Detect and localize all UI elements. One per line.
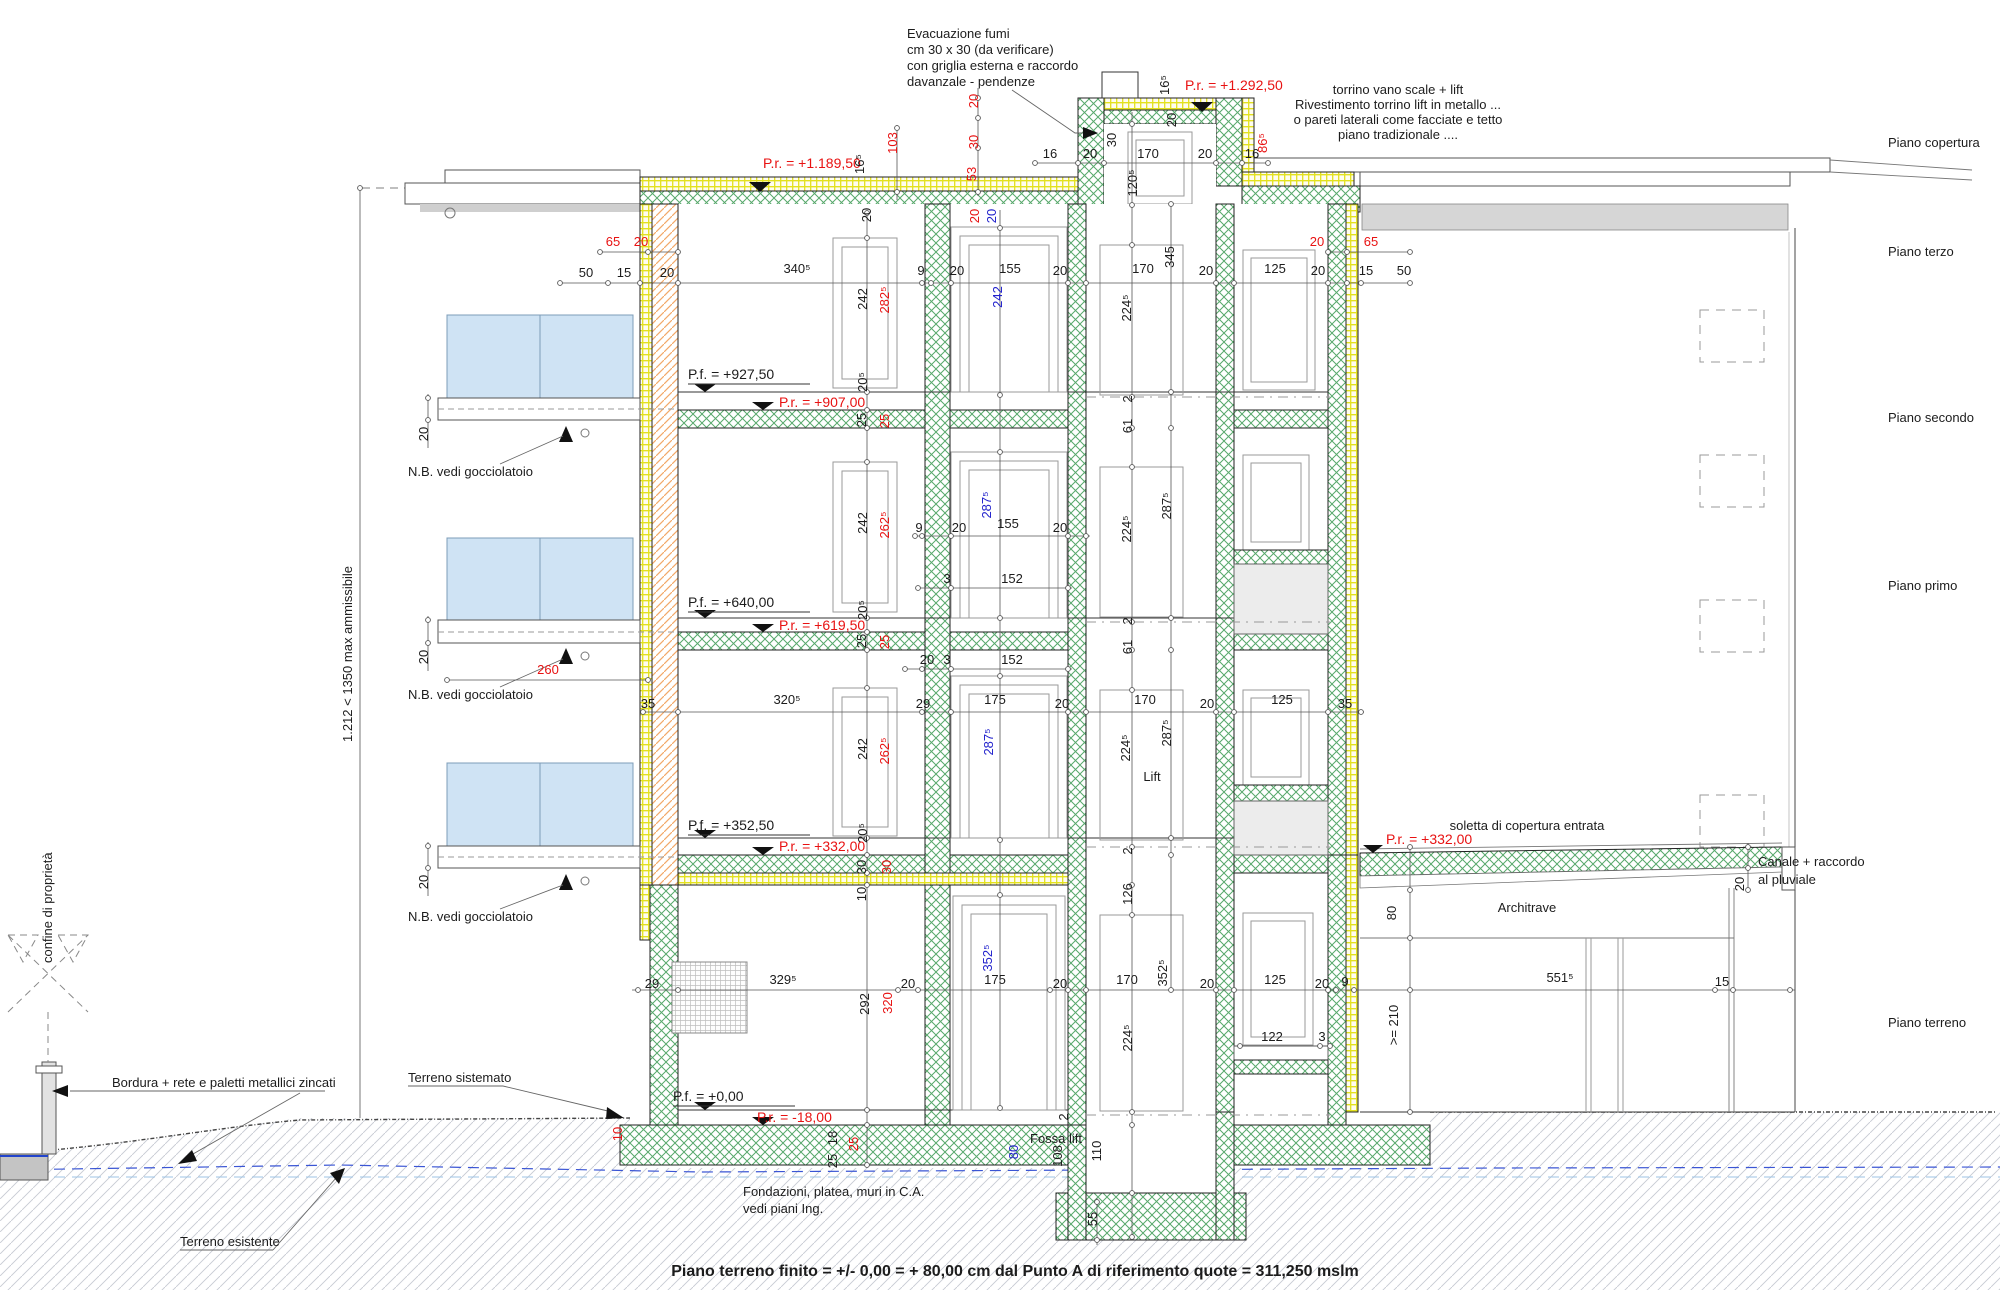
dim-label-red: P.r. = +1.189,50 xyxy=(763,155,861,171)
dim-tick-icon xyxy=(598,250,603,255)
label: 20 xyxy=(1164,113,1179,127)
label: N.B. vedi gocciolatoio xyxy=(408,464,533,479)
dim-tick-icon xyxy=(1130,1235,1135,1240)
roof-insulation xyxy=(640,177,1078,191)
label: 2 xyxy=(1056,1113,1071,1120)
dim-tick-icon xyxy=(865,686,870,691)
dim-tick-icon xyxy=(865,630,870,635)
dim-tick-icon xyxy=(638,281,643,286)
dim-tick-icon xyxy=(1033,161,1038,166)
label: Piano copertura xyxy=(1888,135,1981,150)
label: 20 xyxy=(901,976,915,991)
label: 1.212 < 1350 max ammissibile xyxy=(340,566,355,742)
dim-tick-icon xyxy=(976,116,981,121)
label: torrino vano scale + lift xyxy=(1333,82,1464,97)
dim-tick-icon xyxy=(1048,988,1053,993)
dim-label-red: 25 xyxy=(846,1137,861,1151)
label: 20 xyxy=(1083,146,1097,161)
label: 122 xyxy=(1261,1029,1283,1044)
label: 15 xyxy=(1359,263,1373,278)
dim-tick-icon xyxy=(1066,281,1071,286)
label: 80 xyxy=(1384,906,1399,920)
lift-shaft-wall xyxy=(1216,204,1234,1237)
background-facade xyxy=(1360,228,1795,1112)
label: 292 xyxy=(857,993,872,1015)
dim-tick-icon xyxy=(949,586,954,591)
label: 25 xyxy=(854,413,869,427)
label: Terreno esistente xyxy=(180,1234,280,1249)
dim-tick-icon xyxy=(920,667,925,672)
entrance-step xyxy=(1234,1046,1328,1060)
label: 3 xyxy=(1318,1029,1325,1044)
dim-tick-icon xyxy=(1359,281,1364,286)
dim-label-blue: 242 xyxy=(990,286,1005,308)
label: 352⁵ xyxy=(1155,959,1170,986)
label: cm 30 x 30 (da verificare) xyxy=(907,42,1054,57)
dim-tick-icon xyxy=(1102,161,1107,166)
label: 20⁵ xyxy=(855,823,870,843)
dim-label-red: 30 xyxy=(879,860,894,874)
dim-label-red: 320 xyxy=(880,992,895,1014)
dim-tick-icon xyxy=(426,866,431,871)
label: piano tradizionale .... xyxy=(1338,127,1458,142)
label: Bordura + rete e paletti metallici zinca… xyxy=(112,1075,336,1090)
dim-tick-icon xyxy=(1232,988,1237,993)
dim-tick-icon xyxy=(1408,888,1413,893)
label: Lift xyxy=(1143,769,1161,784)
dim-tick-icon xyxy=(606,281,611,286)
roof-slab-right xyxy=(1254,158,1830,172)
label: 20 xyxy=(1055,696,1069,711)
dim-tick-icon xyxy=(358,186,363,191)
label: Piano secondo xyxy=(1888,410,1974,425)
dim-label-red: P.r. = +619,50 xyxy=(779,617,865,633)
dim-tick-icon xyxy=(1095,1200,1100,1205)
dim-tick-icon xyxy=(636,988,641,993)
dim-label-red: 20 xyxy=(966,94,981,108)
dim-label-red: P.r. = +332,00 xyxy=(1386,831,1472,847)
dim-label-red: 103 xyxy=(885,132,900,154)
label: 242 xyxy=(855,738,870,760)
dim-tick-icon xyxy=(1169,836,1174,841)
label: 320⁵ xyxy=(773,692,800,707)
dim-tick-icon xyxy=(1352,988,1357,993)
dim-label-red: P.r. = +907,00 xyxy=(779,394,865,410)
roof-slab-right xyxy=(1360,172,1790,186)
label: 20 xyxy=(1053,263,1067,278)
label: 30 xyxy=(1104,133,1119,147)
label: vedi piani Ing. xyxy=(743,1201,823,1216)
label: 170 xyxy=(1134,692,1156,707)
dim-tick-icon xyxy=(1169,426,1174,431)
label: 50 xyxy=(579,265,593,280)
dim-label-red: 86⁵ xyxy=(1255,133,1270,153)
label: 20 xyxy=(1053,520,1067,535)
dim-label-red: 282⁵ xyxy=(877,286,892,313)
dim-tick-icon xyxy=(976,190,981,195)
label: 18 xyxy=(825,1131,840,1145)
dim-tick-icon xyxy=(1095,1238,1100,1243)
spandrel-panel xyxy=(1234,564,1328,634)
dim-tick-icon xyxy=(1328,1044,1333,1049)
dim-tick-icon xyxy=(916,586,921,591)
label: 110 xyxy=(1089,1141,1104,1162)
roof-overhang-slab xyxy=(405,183,640,204)
dim-tick-icon xyxy=(998,893,1003,898)
dim-tick-icon xyxy=(1345,250,1350,255)
label: 170 xyxy=(1132,261,1154,276)
label: 2 xyxy=(1120,847,1135,854)
dim-tick-icon xyxy=(998,226,1003,231)
fence-post xyxy=(42,1062,56,1154)
label: Piano terreno finito = +/- 0,00 = + 80,0… xyxy=(671,1263,1358,1280)
dim-tick-icon xyxy=(1318,1044,1323,1049)
dim-tick-icon xyxy=(949,710,954,715)
label: 20 xyxy=(1053,976,1067,991)
label: 20 xyxy=(950,263,964,278)
dim-tick-icon xyxy=(916,988,921,993)
label: P.f. = +0,00 xyxy=(673,1088,744,1104)
label: 20 xyxy=(660,265,674,280)
dim-tick-icon xyxy=(1240,161,1245,166)
dim-label-red: 20 xyxy=(967,209,982,223)
dim-tick-icon xyxy=(1084,534,1089,539)
label: 55 xyxy=(1085,1212,1100,1226)
dim-tick-icon xyxy=(1169,648,1174,653)
dim-tick-icon xyxy=(676,281,681,286)
dim-tick-icon xyxy=(1076,161,1081,166)
dim-tick-icon xyxy=(426,396,431,401)
dim-tick-icon xyxy=(865,883,870,888)
dim-tick-icon xyxy=(1408,250,1413,255)
dim-tick-icon xyxy=(895,126,900,131)
dim-tick-icon xyxy=(1788,988,1793,993)
label: Piano terreno xyxy=(1888,1015,1966,1030)
label: 16⁵ xyxy=(852,154,867,174)
lift-shaft-wall xyxy=(1068,204,1086,1237)
dim-tick-icon xyxy=(1408,1110,1413,1115)
dim-tick-icon xyxy=(1169,853,1174,858)
dim-tick-icon xyxy=(558,281,563,286)
label: 152 xyxy=(1001,571,1023,586)
dim-label-red: P.r. = +1.292,50 xyxy=(1185,77,1283,93)
label: 224⁵ xyxy=(1120,1024,1135,1051)
label: Evacuazione fumi xyxy=(907,26,1010,41)
dim-tick-icon xyxy=(865,1163,870,1168)
dim-tick-icon xyxy=(1130,465,1135,470)
label: 20 xyxy=(416,650,431,664)
label: 20⁵ xyxy=(855,600,870,620)
label: 20 xyxy=(1199,263,1213,278)
dim-tick-icon xyxy=(865,460,870,465)
label: 16⁵ xyxy=(1157,75,1172,95)
dim-label-red: 262⁵ xyxy=(877,511,892,538)
label: soletta di copertura entrata xyxy=(1450,818,1605,833)
slab-insulation xyxy=(678,873,1068,885)
right-wall-insulation xyxy=(1346,204,1358,855)
dim-tick-icon xyxy=(949,281,954,286)
dim-label-red: 53 xyxy=(964,167,979,181)
dim-tick-icon xyxy=(1232,281,1237,286)
label: >= 210 xyxy=(1386,1005,1401,1046)
foundation-slab xyxy=(1234,1125,1430,1165)
dim-tick-icon xyxy=(1130,1191,1135,1196)
dim-tick-icon xyxy=(1408,936,1413,941)
dim-tick-icon xyxy=(1130,243,1135,248)
label: davanzale - pendenze xyxy=(907,74,1035,89)
label: Rivestimento torrino lift in metallo ... xyxy=(1295,97,1501,112)
dim-tick-icon xyxy=(998,616,1003,621)
label: 125 xyxy=(1264,261,1286,276)
facade-area xyxy=(1362,228,1795,1112)
dim-tick-icon xyxy=(1359,710,1364,715)
label: Canale + raccordo xyxy=(1758,854,1865,869)
label: 30 xyxy=(854,860,869,874)
dim-tick-icon xyxy=(1266,161,1271,166)
label: 20 xyxy=(1200,976,1214,991)
dim-tick-icon xyxy=(1084,988,1089,993)
label: 29 xyxy=(645,976,659,991)
fence-cap xyxy=(36,1066,62,1073)
dim-tick-icon xyxy=(1169,390,1174,395)
label: 126 xyxy=(1120,883,1135,905)
dim-tick-icon xyxy=(1169,202,1174,207)
label: 224⁵ xyxy=(1119,515,1134,542)
label: 16 xyxy=(1043,146,1057,161)
left-wall-brick xyxy=(652,204,678,885)
dim-tick-icon xyxy=(1130,122,1135,127)
dim-tick-icon xyxy=(1731,988,1736,993)
label: 120⁵ xyxy=(1125,169,1140,196)
label: 20 xyxy=(920,652,934,667)
label: 345 xyxy=(1162,246,1177,268)
dim-tick-icon xyxy=(1408,281,1413,286)
label: Fossa lift xyxy=(1030,1131,1082,1146)
dim-tick-icon xyxy=(865,1108,870,1113)
dim-tick-icon xyxy=(1130,1123,1135,1128)
label: 15 xyxy=(617,265,631,280)
curb xyxy=(0,1154,48,1180)
label: 15 xyxy=(1715,974,1729,989)
dim-tick-icon xyxy=(1130,203,1135,208)
dim-label-red: 262⁵ xyxy=(877,737,892,764)
dim-label-red: 25 xyxy=(877,414,892,428)
dim-tick-icon xyxy=(896,988,901,993)
label: Piano primo xyxy=(1888,578,1957,593)
dim-tick-icon xyxy=(426,844,431,849)
dim-tick-icon xyxy=(676,250,681,255)
label: 20 xyxy=(1315,976,1329,991)
label: 3 xyxy=(943,652,950,667)
label: 20 xyxy=(416,427,431,441)
label: 242 xyxy=(855,512,870,534)
label: P.f. = +352,50 xyxy=(688,817,774,833)
label: 20 xyxy=(1732,877,1747,891)
label: 20⁵ xyxy=(855,372,870,392)
label: 2 xyxy=(1120,395,1135,402)
label: 20 xyxy=(952,520,966,535)
dim-tick-icon xyxy=(1334,988,1339,993)
label: con griglia esterna e raccordo xyxy=(907,58,1078,73)
dim-tick-icon xyxy=(646,678,651,683)
label: 155 xyxy=(999,261,1021,276)
label: 224⁵ xyxy=(1118,734,1133,761)
label: Terreno sistemato xyxy=(408,1070,511,1085)
dim-label-blue: 352⁵ xyxy=(980,944,995,971)
dim-tick-icon xyxy=(1408,988,1413,993)
label: 125 xyxy=(1264,972,1286,987)
roof-band-right xyxy=(1362,204,1788,230)
label: 340⁵ xyxy=(783,261,810,276)
dim-tick-icon xyxy=(998,674,1003,679)
dim-tick-icon xyxy=(1169,616,1174,621)
dim-label-red: 65 xyxy=(1364,234,1378,249)
label: 287⁵ xyxy=(1159,719,1174,746)
dim-label-red: 20 xyxy=(1310,234,1324,249)
dim-tick-icon xyxy=(676,988,681,993)
label: 29 xyxy=(916,696,930,711)
dim-tick-icon xyxy=(895,190,900,195)
dim-tick-icon xyxy=(1746,866,1751,871)
dim-tick-icon xyxy=(1232,710,1237,715)
right-wall-concrete xyxy=(1328,204,1346,855)
label: 35 xyxy=(641,696,655,711)
label: 35 xyxy=(1338,696,1352,711)
label: 25 xyxy=(854,634,869,648)
label: 287⁵ xyxy=(1159,492,1174,519)
dim-tick-icon xyxy=(1326,250,1331,255)
label: 61 xyxy=(1120,640,1135,654)
dim-tick-icon xyxy=(865,236,870,241)
dim-label-red: 260 xyxy=(537,662,559,677)
label: Piano terzo xyxy=(1888,244,1954,259)
dim-label-red: P.r. = -18,00 xyxy=(757,1109,832,1125)
dim-tick-icon xyxy=(1746,845,1751,850)
label: confine di proprietà xyxy=(40,852,55,963)
grille xyxy=(672,962,747,1033)
dim-tick-icon xyxy=(1066,667,1071,672)
dim-tick-icon xyxy=(998,393,1003,398)
label: Architrave xyxy=(1498,900,1557,915)
label: 329⁵ xyxy=(769,972,796,987)
dim-tick-icon xyxy=(445,678,450,683)
dim-tick-icon xyxy=(998,1106,1003,1111)
dim-tick-icon xyxy=(1214,988,1219,993)
label: N.B. vedi gocciolatoio xyxy=(408,909,533,924)
dim-tick-icon xyxy=(1084,281,1089,286)
label: 108 xyxy=(1050,1145,1065,1167)
label: 20 xyxy=(416,875,431,889)
label: 152 xyxy=(1001,652,1023,667)
dim-tick-icon xyxy=(1066,586,1071,591)
label: Fondazioni, platea, muri in C.A. xyxy=(743,1184,924,1199)
label: 20 xyxy=(1200,696,1214,711)
dim-tick-icon xyxy=(646,250,651,255)
dim-label-red: 25 xyxy=(877,635,892,649)
dim-label-red: P.r. = +332,00 xyxy=(779,838,865,854)
dim-tick-icon xyxy=(1326,710,1331,715)
left-wall-insulation xyxy=(640,204,652,885)
label: 9 xyxy=(1341,974,1348,989)
dim-label-blue: 80 xyxy=(1006,1145,1021,1159)
label: 61 xyxy=(1120,419,1135,433)
dim-tick-icon xyxy=(1214,161,1219,166)
label: 155 xyxy=(997,516,1019,531)
torrino-wall xyxy=(1216,98,1242,186)
dim-label-blue: 20 xyxy=(984,209,999,223)
dim-tick-icon xyxy=(920,281,925,286)
dim-label-blue: 287⁵ xyxy=(981,728,996,755)
dim-tick-icon xyxy=(998,838,1003,843)
label: 170 xyxy=(1137,146,1159,161)
dim-tick-icon xyxy=(426,641,431,646)
dim-tick-icon xyxy=(426,618,431,623)
smoke-vent xyxy=(1102,72,1138,98)
label: P.f. = +640,00 xyxy=(688,594,774,610)
label: 20 xyxy=(1311,263,1325,278)
dim-tick-icon xyxy=(949,667,954,672)
label: N.B. vedi gocciolatoio xyxy=(408,687,533,702)
dim-tick-icon xyxy=(1169,988,1174,993)
label: 175 xyxy=(984,692,1006,707)
dim-label-red: 65 xyxy=(606,234,620,249)
dim-tick-icon xyxy=(1214,281,1219,286)
label: 50 xyxy=(1397,263,1411,278)
label: 3 xyxy=(943,571,950,586)
label: 170 xyxy=(1116,972,1138,987)
dim-tick-icon xyxy=(1345,281,1350,286)
label: 242 xyxy=(855,288,870,310)
dim-tick-icon xyxy=(998,450,1003,455)
label: 20 xyxy=(859,208,874,222)
dim-tick-icon xyxy=(865,408,870,413)
building-section-drawing: Evacuazione fumicm 30 x 30 (da verificar… xyxy=(0,0,2000,1290)
roof-overhang-slab xyxy=(445,170,640,183)
label: al pluviale xyxy=(1758,872,1816,887)
dim-label-red: 20 xyxy=(634,234,648,249)
label: 9 xyxy=(917,263,924,278)
dim-tick-icon xyxy=(426,418,431,423)
roof-slab xyxy=(640,191,1078,205)
label: 9 xyxy=(915,520,922,535)
dim-tick-icon xyxy=(1130,913,1135,918)
dim-tick-icon xyxy=(1130,1110,1135,1115)
label: 175 xyxy=(984,972,1006,987)
label: 20 xyxy=(1198,146,1212,161)
dim-tick-icon xyxy=(1326,281,1331,286)
label: o pareti laterali come facciate e tetto xyxy=(1294,112,1503,127)
label: 224⁵ xyxy=(1119,294,1134,321)
dim-tick-icon xyxy=(676,710,681,715)
dim-tick-icon xyxy=(1238,1044,1243,1049)
label: 25 xyxy=(825,1154,840,1168)
dim-label-red: 10 xyxy=(610,1127,625,1141)
dim-tick-icon xyxy=(929,281,934,286)
dim-tick-icon xyxy=(865,1123,870,1128)
label: 125 xyxy=(1271,692,1293,707)
label: 2 xyxy=(1120,617,1135,624)
dim-tick-icon xyxy=(1084,710,1089,715)
dim-tick-icon xyxy=(1214,710,1219,715)
dim-label-blue: 287⁵ xyxy=(979,491,994,518)
dim-label-red: 30 xyxy=(966,135,981,149)
roof-shadow xyxy=(420,204,640,212)
dim-tick-icon xyxy=(903,667,908,672)
label: 10 xyxy=(854,887,869,901)
label: 551⁵ xyxy=(1546,970,1573,985)
label: P.f. = +927,50 xyxy=(688,366,774,382)
dim-tick-icon xyxy=(865,853,870,858)
